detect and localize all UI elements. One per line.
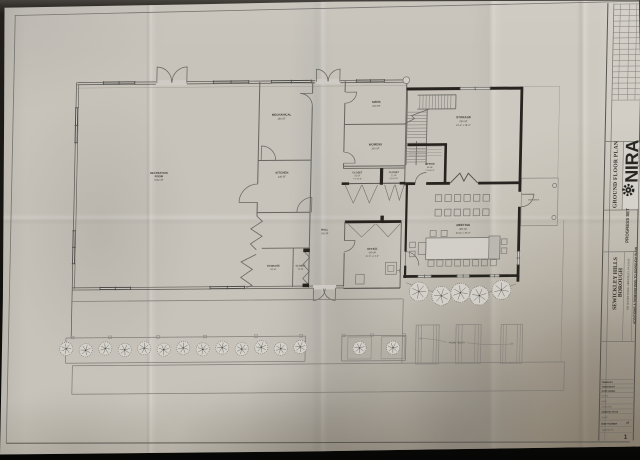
svg-text:STORAGE: STORAGE: [267, 264, 280, 268]
svg-text:ROOM: ROOM: [155, 174, 164, 178]
svg-text:CLOSET: CLOSET: [389, 171, 400, 174]
svg-text:MEETING: MEETING: [456, 223, 470, 227]
svg-text:ADDITIONS & RENOVATIONS TO BOR: ADDITIONS & RENOVATIONS TO BOROUGH BLDG: [632, 246, 638, 324]
svg-text:KITCHEN: KITCHEN: [275, 171, 288, 175]
svg-text:20-035: 20-035: [601, 417, 608, 419]
svg-text:93 SF: 93 SF: [270, 269, 277, 271]
svg-text:260 SF: 260 SF: [459, 120, 468, 123]
svg-text:10'-0" x 14'-0": 10'-0" x 14'-0": [365, 256, 379, 258]
svg-text:1: 1: [624, 434, 628, 441]
svg-text:1502 SF: 1502 SF: [154, 179, 164, 182]
svg-text:SHEET NUMBER: SHEET NUMBER: [601, 423, 618, 425]
svg-text:GROUND FLOOR PLAN: GROUND FLOOR PLAN: [612, 140, 619, 208]
svg-text:DATE: DATE: [602, 400, 608, 403]
svg-text:DRAWN BY: DRAWN BY: [602, 381, 614, 384]
svg-text:145 SF: 145 SF: [278, 176, 287, 179]
svg-text:ENTRANCE: ENTRANCE: [528, 198, 540, 201]
svg-text:450 SF: 450 SF: [459, 228, 468, 231]
svg-text:OFFICE: OFFICE: [367, 247, 377, 251]
svg-text:100 SF: 100 SF: [372, 105, 381, 108]
svg-text:7'-2"x3'-6": 7'-2"x3'-6": [353, 178, 362, 180]
svg-text:PICNIC TABLES: PICNIC TABLES: [449, 341, 466, 344]
svg-text:STORAGE: STORAGE: [456, 115, 471, 119]
svg-text:140 SF: 140 SF: [368, 251, 376, 254]
svg-text:12 SF: 12 SF: [391, 175, 398, 177]
svg-text:25 SF: 25 SF: [354, 175, 361, 177]
svg-text:of: of: [626, 421, 629, 425]
svg-text:3'-6"x3'-6": 3'-6"x3'-6": [389, 178, 398, 180]
svg-text:DRAWING NO: DRAWING NO: [602, 429, 614, 432]
svg-text:7'-6"x8'-9": 7'-6"x8'-9": [425, 170, 434, 172]
svg-text:CLOSET: CLOSET: [352, 171, 363, 174]
svg-text:OFFICE: OFFICE: [425, 162, 435, 166]
svg-text:12 SF: 12 SF: [298, 269, 304, 271]
svg-text:CHECKED BY: CHECKED BY: [602, 386, 616, 388]
svg-text:BOROUGH: BOROUGH: [618, 267, 625, 297]
svg-text:HALL: HALL: [321, 228, 329, 232]
svg-text:MENS: MENS: [372, 100, 381, 104]
svg-text:150 SF: 150 SF: [277, 118, 286, 121]
svg-text:340 MAGEE ROAD, SEWICKLEY, PA: 340 MAGEE ROAD, SEWICKLEY, PA 15143: [625, 258, 630, 310]
svg-text:DATE 01/04/21: DATE 01/04/21: [602, 390, 617, 393]
svg-text:100 SF: 100 SF: [321, 233, 329, 235]
svg-text:COMM NO 20-035: COMM NO 20-035: [601, 411, 619, 413]
svg-text:SCALE: SCALE: [602, 394, 609, 397]
svg-text:AS NOTED: AS NOTED: [601, 406, 612, 409]
svg-text:100 SF: 100 SF: [371, 147, 380, 150]
svg-text:12'-5" x 18'-2": 12'-5" x 18'-2": [456, 124, 471, 127]
svg-text:MECHANICAL: MECHANICAL: [272, 113, 292, 117]
svg-text:PROGRESS SET: PROGRESS SET: [624, 208, 630, 243]
svg-text:22'-6" x 19'-2": 22'-6" x 19'-2": [456, 232, 471, 235]
svg-text:65 SF: 65 SF: [427, 167, 434, 169]
svg-text:WOMENS: WOMENS: [369, 142, 382, 146]
